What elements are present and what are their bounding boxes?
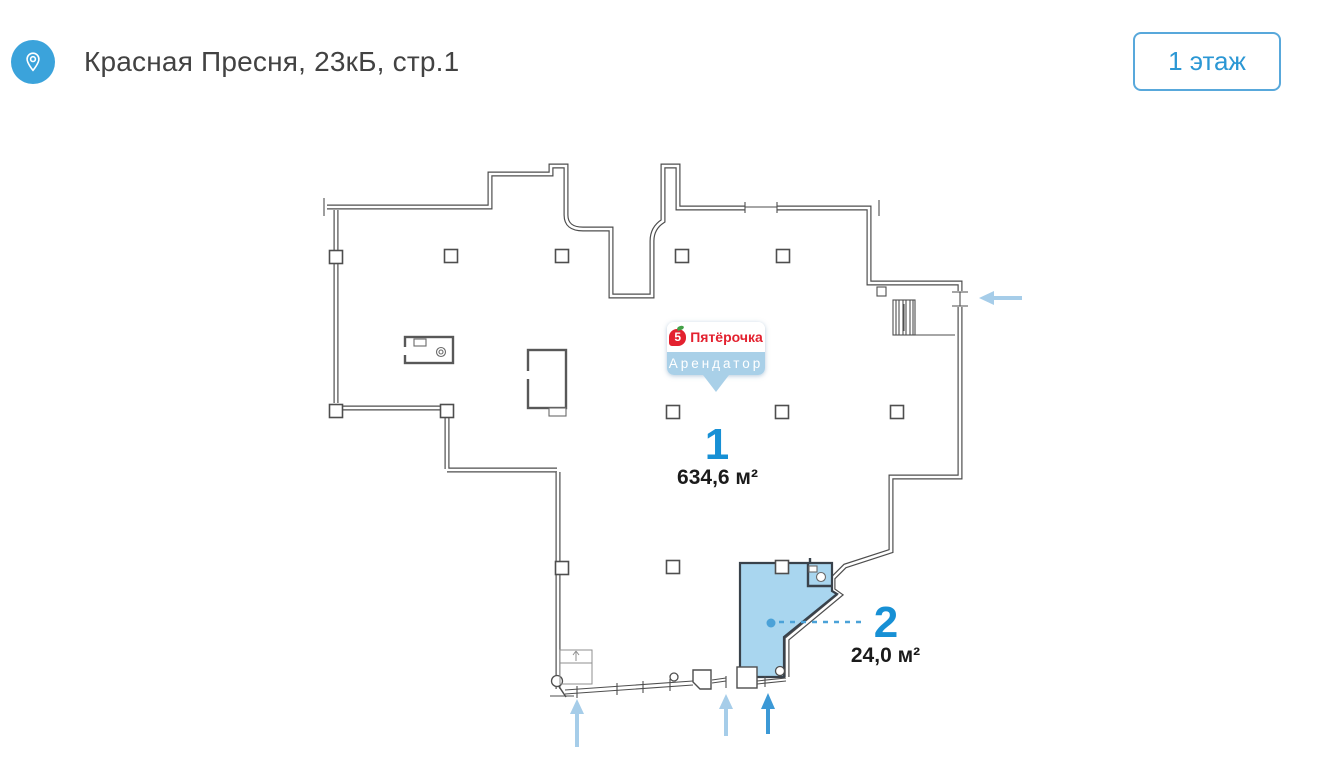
unit-2-area: 24,0 м² (838, 645, 933, 666)
unit-1-area: 634,6 м² (655, 467, 780, 488)
staircase (877, 287, 955, 335)
entrance-arrow-right (979, 291, 1022, 305)
outer-walls (324, 166, 960, 689)
floor-plan-page: { "header": { "title": "Красная Пресня, … (0, 0, 1339, 767)
bottom-wall (550, 667, 786, 699)
entrance-arrow-bottom-1 (570, 699, 584, 747)
tenant-brand-name: Пятёрочка (690, 329, 763, 345)
tenant-badge: 5 Пятёрочка Арендатор (667, 322, 765, 392)
badge-pointer-icon (703, 375, 729, 392)
unit-1-number[interactable]: 1 (700, 423, 734, 467)
pyaterochka-logo-icon: 5 (669, 329, 686, 346)
entrance-arrow-bottom-3 (761, 693, 775, 734)
entrance-arrow-bottom-2 (719, 694, 733, 736)
utility-room (528, 350, 566, 416)
unit-2-number[interactable]: 2 (868, 601, 904, 645)
bathroom-left (405, 337, 453, 363)
vestibule-stairs (560, 650, 592, 684)
tenant-label: Арендатор (667, 352, 765, 375)
